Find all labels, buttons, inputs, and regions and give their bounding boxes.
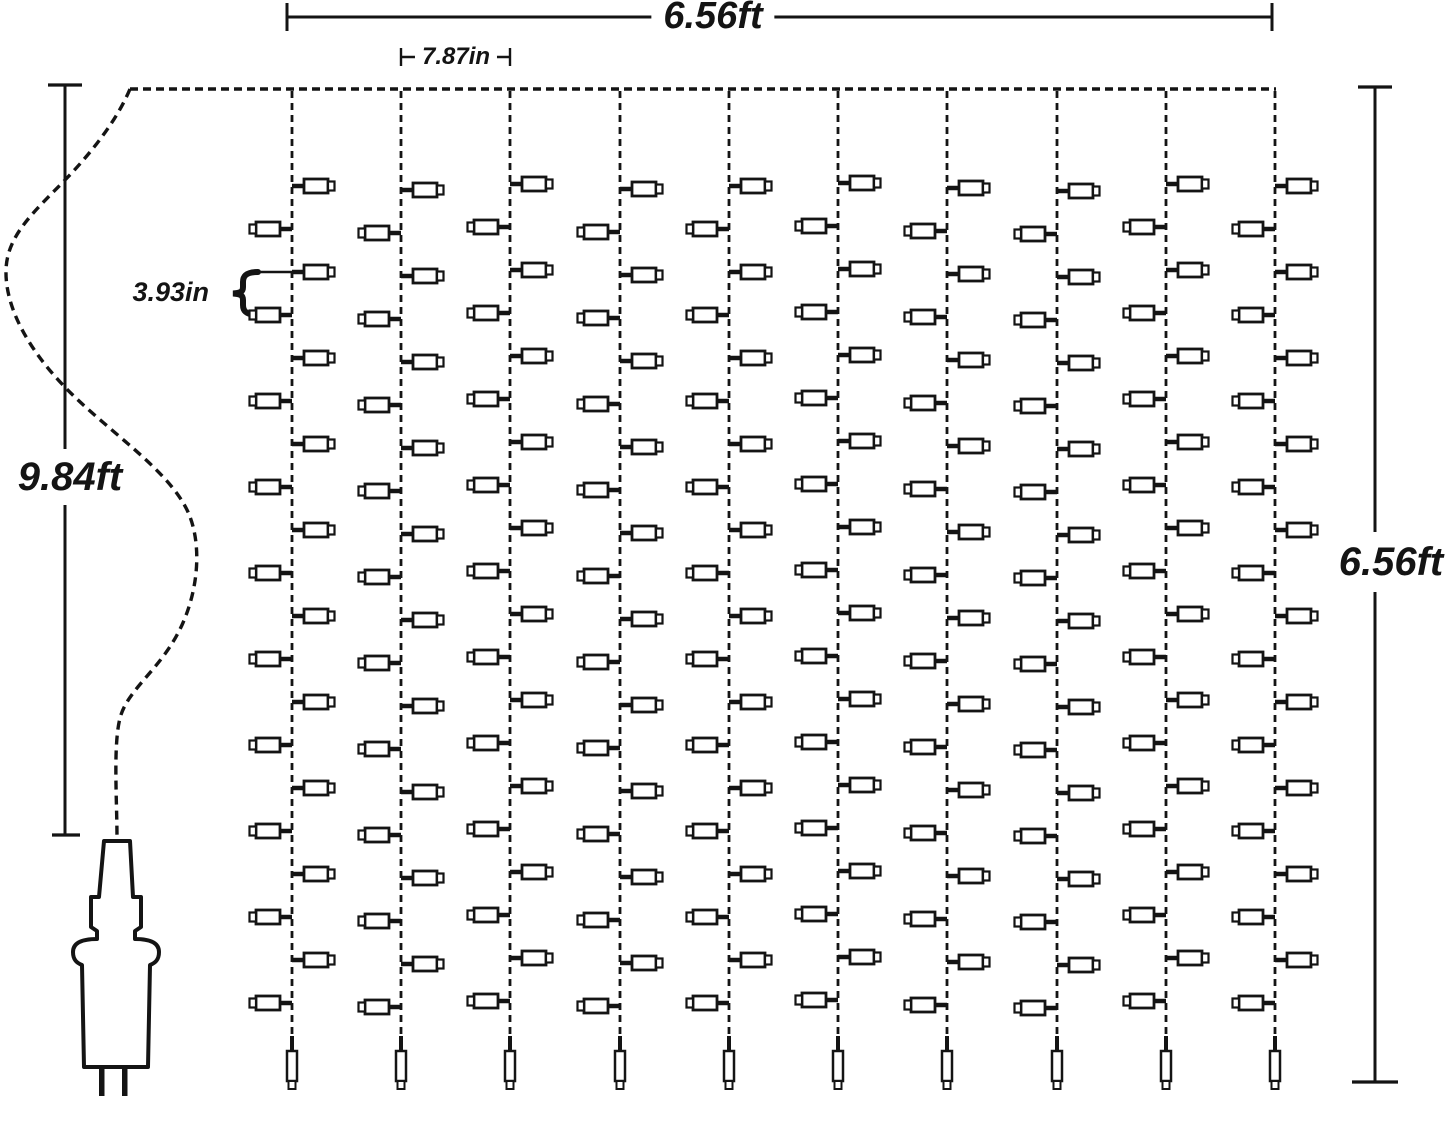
bulb-body: [1239, 996, 1263, 1010]
bulb-body: [1287, 265, 1311, 279]
bulb-icon: [510, 177, 553, 191]
bulb-icon: [510, 865, 553, 879]
bulb-tip: [905, 657, 912, 666]
bulb-tip: [1202, 524, 1209, 533]
bulb-body: [1178, 693, 1202, 707]
end-bulb-body: [1161, 1051, 1171, 1081]
bulb-body: [632, 784, 656, 798]
bulb-body: [365, 484, 389, 498]
bulb-icon: [359, 742, 402, 756]
bulb-body: [1287, 179, 1311, 193]
bulb-icon: [729, 523, 772, 537]
bulb-body: [365, 656, 389, 670]
strand: [796, 91, 881, 1089]
bulb-tip: [1311, 784, 1318, 793]
bulb-icon: [620, 440, 663, 454]
bulb-tip: [983, 614, 990, 623]
bulb-icon: [578, 655, 621, 669]
strand: [250, 91, 335, 1089]
bulb-icon: [468, 306, 511, 320]
bulb-icon: [729, 265, 772, 279]
bulb-tip: [578, 486, 585, 495]
bulb-body: [1239, 566, 1263, 580]
bulb-body: [693, 566, 717, 580]
bulb-tip: [328, 784, 335, 793]
bulb-icon: [1124, 736, 1167, 750]
bulb-icon: [947, 267, 990, 281]
bulb-icon: [292, 953, 335, 967]
bulb-tip: [468, 567, 475, 576]
end-bulb-tip: [617, 1081, 624, 1089]
bulb-tip: [578, 572, 585, 581]
bulb-icon: [1275, 781, 1318, 795]
bulb-body: [304, 867, 328, 881]
bulb-tip: [546, 610, 553, 619]
bulb-body: [959, 525, 983, 539]
bulb-tip: [1233, 569, 1240, 578]
bulb-icon: [1166, 349, 1209, 363]
bulb-tip: [1202, 782, 1209, 791]
bulb-icon: [1166, 263, 1209, 277]
bulb-body: [911, 310, 935, 324]
bulb-icon: [1015, 571, 1058, 585]
bulb-body: [850, 692, 874, 706]
bulb-tip: [250, 397, 257, 406]
bulb-tip: [983, 786, 990, 795]
bulb-icon: [292, 437, 335, 451]
bulb-tip: [1093, 875, 1100, 884]
bulb-body: [911, 998, 935, 1012]
bulb-body: [911, 654, 935, 668]
bulb-icon: [1233, 652, 1276, 666]
bulb-body: [256, 394, 280, 408]
bulb-icon: [729, 953, 772, 967]
bulb-body: [1239, 222, 1263, 236]
bulb-tip: [874, 179, 881, 188]
bulb-body: [741, 781, 765, 795]
bulb-body: [256, 910, 280, 924]
bulb-body: [693, 652, 717, 666]
bulb-body: [959, 869, 983, 883]
bulb-icon: [796, 477, 839, 491]
bulb-tip: [328, 268, 335, 277]
bulb-tip: [1233, 397, 1240, 406]
bulb-tip: [905, 313, 912, 322]
bulb-icon: [1233, 394, 1276, 408]
bulb-body: [474, 306, 498, 320]
bulb-spacing-label: 3.93in: [128, 278, 213, 308]
bulb-tip: [546, 352, 553, 361]
bulb-tip: [656, 615, 663, 624]
bulb-icon: [1233, 996, 1276, 1010]
bulb-tip: [687, 569, 694, 578]
bulb-icon: [468, 478, 511, 492]
bulb-tip: [359, 659, 366, 668]
bulb-tip: [687, 225, 694, 234]
bulb-icon: [687, 566, 730, 580]
bulb-body: [304, 781, 328, 795]
bulb-icon: [905, 654, 948, 668]
bulb-icon: [687, 910, 730, 924]
bulb-body: [959, 697, 983, 711]
bulb-body: [850, 864, 874, 878]
bulb-body: [1021, 227, 1045, 241]
plug-prong: [122, 1067, 128, 1096]
bulb-icon: [687, 308, 730, 322]
bulb-icon: [947, 353, 990, 367]
bulb-icon: [1166, 779, 1209, 793]
bulb-icon: [905, 740, 948, 754]
bulb-icon: [1124, 650, 1167, 664]
bulb-tip: [765, 870, 772, 879]
bulb-body: [959, 353, 983, 367]
bulb-tip: [578, 658, 585, 667]
bulb-icon: [1166, 951, 1209, 965]
bulb-icon: [1233, 480, 1276, 494]
bulb-tip: [1124, 653, 1131, 662]
bulb-tip: [359, 315, 366, 324]
end-bulb-tip: [289, 1081, 296, 1089]
bulb-tip: [328, 354, 335, 363]
bulb-tip: [359, 917, 366, 926]
bulb-body: [522, 521, 546, 535]
bulb-body: [1130, 306, 1154, 320]
bulb-body: [256, 996, 280, 1010]
bulb-body: [959, 611, 983, 625]
bulb-body: [584, 913, 608, 927]
end-bulb-icon: [1161, 1036, 1171, 1089]
bulb-tip: [1124, 309, 1131, 318]
bulb-body: [365, 226, 389, 240]
end-bulb-tip: [944, 1081, 951, 1089]
bulb-icon: [838, 692, 881, 706]
bulb-icon: [578, 225, 621, 239]
bulb-icon: [838, 262, 881, 276]
bulb-icon: [838, 864, 881, 878]
bulb-body: [1287, 953, 1311, 967]
bulb-body: [584, 397, 608, 411]
bulb-icon: [250, 394, 293, 408]
bulb-icon: [250, 652, 293, 666]
end-bulb-body: [1052, 1051, 1062, 1081]
bulb-tip: [1124, 481, 1131, 490]
bulb-icon: [620, 354, 663, 368]
bulb-tip: [656, 701, 663, 710]
bulb-body: [256, 824, 280, 838]
bulb-tip: [765, 182, 772, 191]
bulb-icon: [796, 649, 839, 663]
bulb-body: [1130, 478, 1154, 492]
bulb-icon: [905, 826, 948, 840]
bulb-body: [1021, 743, 1045, 757]
bulb-body: [1021, 657, 1045, 671]
bulb-tip: [468, 395, 475, 404]
bulb-tip: [1015, 660, 1022, 669]
bulb-icon: [620, 612, 663, 626]
bulb-body: [1178, 607, 1202, 621]
bulb-tip: [905, 227, 912, 236]
bulb-icon: [620, 870, 663, 884]
bulb-icon: [1233, 738, 1276, 752]
bulb-tip: [983, 958, 990, 967]
bulb-tip: [1233, 225, 1240, 234]
end-bulb-body: [615, 1051, 625, 1081]
bulb-body: [802, 821, 826, 835]
bulb-icon: [1057, 958, 1100, 972]
bulb-tip: [578, 744, 585, 753]
bulb-tip: [656, 271, 663, 280]
bulb-tip: [359, 745, 366, 754]
bulb-icon: [1057, 184, 1100, 198]
bulb-body: [1178, 521, 1202, 535]
bulb-tip: [250, 827, 257, 836]
bulb-body: [413, 613, 437, 627]
bulb-body: [1239, 308, 1263, 322]
bulb-body: [1178, 177, 1202, 191]
bulb-icon: [1166, 865, 1209, 879]
bulb-body: [850, 262, 874, 276]
bulb-body: [1178, 779, 1202, 793]
bulb-tip: [1311, 526, 1318, 535]
bulb-body: [632, 182, 656, 196]
bulb-tip: [1015, 402, 1022, 411]
bulb-icon: [687, 394, 730, 408]
callout-brace: [233, 272, 258, 315]
end-bulb-tip: [1163, 1081, 1170, 1089]
bulb-body: [413, 183, 437, 197]
bulb-tip: [468, 309, 475, 318]
light-curtain: [130, 89, 1318, 1089]
bulb-icon: [1015, 313, 1058, 327]
end-bulb-body: [942, 1051, 952, 1081]
bulb-icon: [359, 226, 402, 240]
bulb-icon: [250, 566, 293, 580]
end-bulb-icon: [1052, 1036, 1062, 1089]
bulb-tip: [1311, 182, 1318, 191]
bulb-body: [802, 649, 826, 663]
bulb-tip: [1233, 741, 1240, 750]
bulb-body: [522, 435, 546, 449]
bulb-body: [584, 225, 608, 239]
bulb-tip: [1093, 703, 1100, 712]
strand: [578, 91, 663, 1089]
bulb-tip: [1015, 316, 1022, 325]
bulb-icon: [1233, 222, 1276, 236]
bulb-tip: [1124, 739, 1131, 748]
bulb-icon: [905, 310, 948, 324]
bulb-icon: [687, 480, 730, 494]
end-bulb-tip: [835, 1081, 842, 1089]
bulb-tip: [687, 827, 694, 836]
bulb-body: [802, 391, 826, 405]
bulb-body: [1287, 695, 1311, 709]
bulb-body: [693, 480, 717, 494]
bulb-body: [365, 828, 389, 842]
bulb-icon: [468, 564, 511, 578]
plug-body: [73, 841, 159, 1067]
bulb-icon: [1275, 437, 1318, 451]
bulb-icon: [1166, 693, 1209, 707]
strand: [468, 91, 553, 1089]
bulb-tip: [983, 184, 990, 193]
bulb-icon: [1124, 392, 1167, 406]
bulb-tip: [687, 741, 694, 750]
bulb-body: [522, 263, 546, 277]
bulb-icon: [250, 738, 293, 752]
end-bulb-icon: [615, 1036, 625, 1089]
bulb-body: [959, 181, 983, 195]
bulb-icon: [905, 482, 948, 496]
bulb-icon: [947, 525, 990, 539]
bulb-tip: [1311, 870, 1318, 879]
bulb-icon: [1057, 270, 1100, 284]
bulb-body: [1130, 220, 1154, 234]
bulb-tip: [437, 186, 444, 195]
strand: [1233, 91, 1318, 1089]
bulb-body: [693, 394, 717, 408]
end-bulb-icon: [1270, 1036, 1280, 1089]
bulb-body: [1130, 822, 1154, 836]
bulb-icon: [1015, 829, 1058, 843]
bulb-body: [1130, 736, 1154, 750]
bulb-body: [693, 996, 717, 1010]
bulb-tip: [546, 180, 553, 189]
bulb-icon: [1166, 177, 1209, 191]
bulb-icon: [620, 182, 663, 196]
bulb-body: [584, 311, 608, 325]
bulb-tip: [468, 825, 475, 834]
bulb-body: [413, 441, 437, 455]
bulb-body: [632, 870, 656, 884]
bulb-icon: [292, 695, 335, 709]
bulb-icon: [578, 311, 621, 325]
bulb-body: [911, 396, 935, 410]
bulb-icon: [1124, 306, 1167, 320]
bulb-body: [850, 778, 874, 792]
bulb-body: [413, 699, 437, 713]
bulb-tip: [1124, 223, 1131, 232]
bulb-body: [1287, 609, 1311, 623]
bulb-tip: [546, 438, 553, 447]
bulb-body: [741, 351, 765, 365]
bulb-icon: [838, 950, 881, 964]
end-bulb-icon: [505, 1036, 515, 1089]
bulb-icon: [1166, 435, 1209, 449]
bulb-icon: [729, 351, 772, 365]
bulb-tip: [468, 653, 475, 662]
bulb-body: [911, 826, 935, 840]
bulb-icon: [359, 828, 402, 842]
bulb-icon: [947, 181, 990, 195]
curtain-height-label: 6.56ft: [1337, 532, 1445, 592]
end-bulb-tip: [726, 1081, 733, 1089]
bulb-icon: [510, 521, 553, 535]
bulb-body: [802, 993, 826, 1007]
bulb-icon: [359, 570, 402, 584]
bulb-body: [1239, 738, 1263, 752]
bulb-icon: [1015, 915, 1058, 929]
bulb-body: [1239, 824, 1263, 838]
bulb-body: [850, 520, 874, 534]
bulb-tip: [765, 354, 772, 363]
bulb-tip: [437, 358, 444, 367]
bulb-body: [522, 779, 546, 793]
bulb-body: [802, 563, 826, 577]
bulb-tip: [1202, 868, 1209, 877]
bulb-tip: [1233, 655, 1240, 664]
bulb-icon: [359, 656, 402, 670]
end-bulb-body: [505, 1051, 515, 1081]
bulb-tip: [796, 394, 803, 403]
bulb-icon: [905, 912, 948, 926]
bulb-icon: [947, 697, 990, 711]
bulb-body: [522, 865, 546, 879]
bulb-body: [959, 267, 983, 281]
bulb-icon: [250, 222, 293, 236]
end-bulb-body: [287, 1051, 297, 1081]
bulb-body: [1021, 571, 1045, 585]
bulb-icon: [401, 441, 444, 455]
bulb-tip: [983, 356, 990, 365]
bulb-body: [850, 176, 874, 190]
bulb-icon: [292, 609, 335, 623]
bulb-icon: [468, 392, 511, 406]
bulb-tip: [328, 440, 335, 449]
bulb-body: [474, 392, 498, 406]
bulb-icon: [578, 913, 621, 927]
bulb-body: [522, 177, 546, 191]
bulb-tip: [1015, 746, 1022, 755]
lead-wire-length-label: 9.84ft: [16, 449, 125, 505]
bulb-tip: [1124, 911, 1131, 920]
bulb-body: [304, 437, 328, 451]
bulb-body: [632, 698, 656, 712]
bulb-icon: [510, 693, 553, 707]
bulb-body: [850, 434, 874, 448]
bulb-icon: [1275, 695, 1318, 709]
bulb-tip: [250, 999, 257, 1008]
bulb-tip: [796, 566, 803, 575]
strand: [359, 91, 444, 1089]
bulb-tip: [1311, 440, 1318, 449]
bulb-tip: [1015, 574, 1022, 583]
plug-prong: [99, 1067, 105, 1096]
bulb-body: [474, 736, 498, 750]
bulb-tip: [468, 223, 475, 232]
bulb-icon: [796, 735, 839, 749]
bulb-tip: [1202, 438, 1209, 447]
bulb-icon: [1275, 351, 1318, 365]
bulb-tip: [1311, 268, 1318, 277]
bulb-body: [741, 609, 765, 623]
bulb-body: [802, 305, 826, 319]
bulb-icon: [620, 526, 663, 540]
bulb-icon: [468, 736, 511, 750]
bulb-body: [802, 219, 826, 233]
bulb-tip: [546, 954, 553, 963]
bulb-tip: [874, 437, 881, 446]
bulb-tip: [328, 956, 335, 965]
bulb-tip: [983, 442, 990, 451]
bulb-body: [1178, 349, 1202, 363]
bulb-tip: [546, 696, 553, 705]
end-bulb-icon: [942, 1036, 952, 1089]
bulb-icon: [1015, 1001, 1058, 1015]
bulb-tip: [1015, 832, 1022, 841]
bulb-icon: [1166, 607, 1209, 621]
bulb-icon: [1233, 824, 1276, 838]
bulb-icon: [1057, 528, 1100, 542]
